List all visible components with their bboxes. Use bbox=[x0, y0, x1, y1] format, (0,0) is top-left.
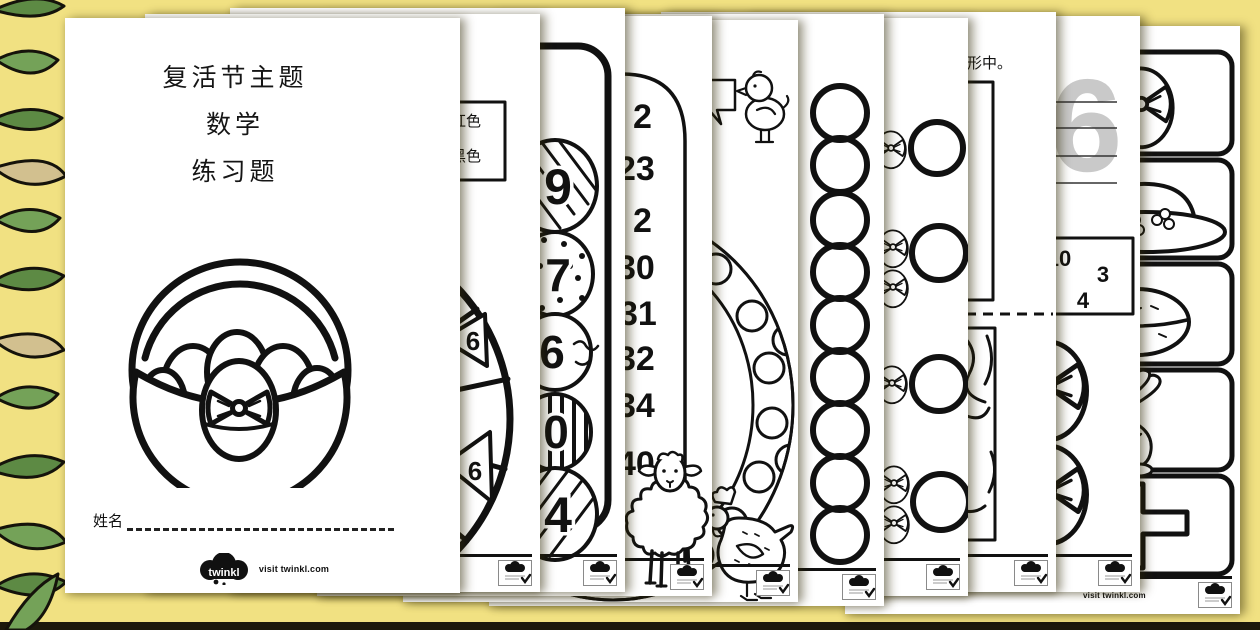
cover-title-line2: 数学 bbox=[115, 101, 355, 148]
svg-text:6: 6 bbox=[539, 326, 565, 378]
twinkl-badge bbox=[1014, 560, 1048, 586]
twinkl-badge bbox=[498, 560, 532, 586]
bond-number-3: 3 bbox=[1097, 262, 1109, 287]
svg-text:0: 0 bbox=[543, 406, 569, 458]
easter-basket-icon bbox=[115, 238, 365, 488]
visit-twinkl-text: visit twinkl.com bbox=[259, 564, 329, 574]
worksheet-pack-preview: { "background": { "color": "#f1e182", "b… bbox=[0, 0, 1260, 630]
cover-title-line1: 复活节主题 bbox=[115, 54, 355, 101]
twinkl-badge bbox=[842, 574, 876, 600]
answer-circle bbox=[913, 474, 968, 530]
answer-circle bbox=[912, 226, 966, 280]
twinkl-badge bbox=[926, 564, 960, 590]
wheel-number: 6 bbox=[466, 326, 480, 356]
svg-text:7: 7 bbox=[545, 249, 571, 301]
twinkl-logo-text: twinkl bbox=[208, 567, 239, 579]
twinkl-logo: twinkl bbox=[196, 553, 252, 585]
cover-title: 复活节主题 数学 练习题 bbox=[115, 54, 355, 195]
twinkl-badge bbox=[1098, 560, 1132, 586]
twinkl-badge bbox=[670, 564, 704, 590]
svg-text:9: 9 bbox=[544, 159, 572, 215]
name-write-line bbox=[127, 514, 394, 531]
twinkl-badge bbox=[583, 560, 617, 586]
bond-number-4: 4 bbox=[1077, 288, 1090, 313]
track-number: 2 bbox=[633, 204, 652, 238]
svg-text:4: 4 bbox=[544, 487, 572, 543]
twinkl-badge bbox=[756, 570, 790, 596]
twinkl-badge bbox=[1198, 582, 1232, 608]
bottom-edge-bar bbox=[0, 622, 1260, 630]
name-label: 姓名 bbox=[93, 510, 123, 531]
wheel-number: 6 bbox=[468, 456, 482, 486]
worksheet-cover-page: 复活节主题 数学 练习题 姓名 bbox=[65, 18, 460, 593]
answer-circle bbox=[912, 357, 966, 411]
track-number: 2 bbox=[633, 100, 652, 134]
cover-title-line3: 练习题 bbox=[115, 148, 355, 195]
answer-circle bbox=[911, 122, 963, 174]
